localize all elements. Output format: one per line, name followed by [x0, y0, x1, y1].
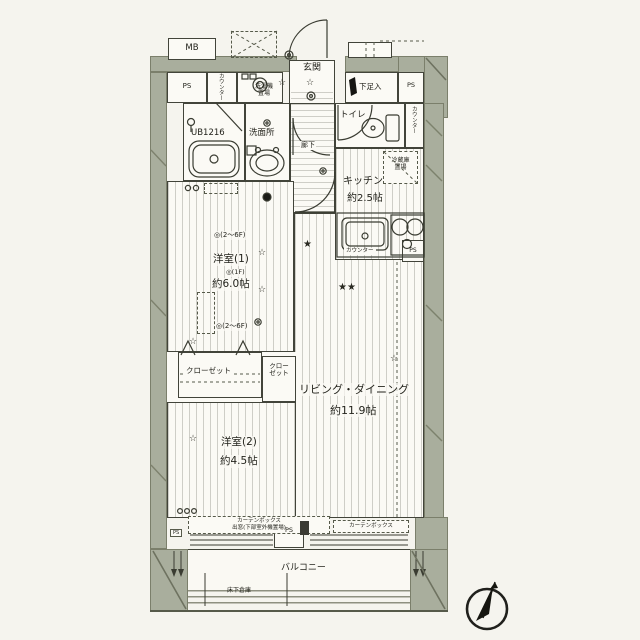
sliding-window-lines — [190, 535, 408, 545]
room1-note-1f: ◎(1F) — [226, 269, 245, 277]
pipe-space-bottom-label: PS — [274, 527, 304, 535]
living-size-label: 約11.9帖 — [330, 404, 377, 417]
entrance-door-arc — [289, 20, 327, 58]
fridge-space-label: 冷蔵庫 置場 — [383, 158, 418, 172]
star-room1-lower: ☆ — [258, 285, 266, 295]
closet-pipe-lines — [180, 374, 260, 382]
kitchen-counter-label: カウンター — [344, 248, 376, 255]
counter-strip-right-label: カウンター — [410, 106, 417, 146]
hallway-label: 廊下 — [300, 141, 316, 150]
pipe-space-kitchen-label: PS — [402, 247, 424, 254]
floorplan-vector-layer — [0, 0, 640, 640]
alcove-cross-lines — [231, 31, 277, 58]
top-duct-dashes — [366, 41, 424, 58]
shoe-cabinet-label: 下足入 — [359, 82, 382, 91]
washbasin-icon — [247, 146, 284, 176]
kitchen-name-label: キッチン — [343, 176, 383, 188]
kitchen-size-label: 約2.5帖 — [347, 193, 383, 205]
shoe-wedge-icon — [349, 77, 357, 96]
living-door-arc — [295, 172, 335, 212]
structure-dot — [263, 193, 271, 201]
balcony-label: バルコニー — [281, 563, 326, 574]
star-entrance: ☆ — [306, 78, 314, 88]
pipe-space-top-right-label: PS — [398, 82, 424, 90]
wall-hatch-lines — [151, 120, 442, 481]
washer-space-label: 洗濯機 置場 — [246, 84, 282, 97]
room2-name-label: 洋室(2) — [221, 436, 257, 449]
star-room2: ☆ — [189, 434, 197, 444]
star-kitchen-left: ★ — [303, 239, 312, 250]
pipe-space-bottom-left-label: PS — [170, 529, 182, 537]
floorplan-canvas: MB PS カウンター 洗濯機 置場 玄関 下足入 PS UB1216 洗面所 … — [0, 0, 640, 640]
room1-note-lower: ◎(2～6F) — [216, 322, 248, 331]
star-closet: ☆ — [189, 337, 197, 347]
star-living-right: ☆ — [390, 354, 398, 364]
north-compass-icon — [467, 582, 507, 629]
curtain-box-left-label: カーテンボックス 出窓(下部室外機置場) — [190, 518, 328, 531]
room2-size-label: 約4.5帖 — [220, 455, 258, 468]
toilet-label: トイレ — [340, 110, 366, 120]
pipe-space-top-left-label: PS — [167, 82, 207, 91]
washroom-label: 洗面所 — [249, 128, 275, 138]
counter-strip-left-label: カウンター — [217, 73, 224, 103]
room1-name-label: 洋室(1) — [213, 253, 249, 266]
underfloor-storage-label: 床下倉庫 — [227, 587, 251, 594]
closet-main-label: クローゼット — [186, 366, 231, 375]
toilet-icon — [362, 115, 399, 141]
star-room1-upper: ☆ — [258, 248, 266, 258]
star-entrance-outside: ☆ — [278, 78, 286, 88]
entrance-label: 玄関 — [289, 63, 335, 74]
living-name-label: リビング・ダイニング — [299, 383, 409, 396]
meter-box-label: MB — [168, 43, 216, 53]
bath-folding-door — [216, 103, 242, 131]
closet-small-label: クロー ゼット — [262, 363, 296, 378]
curtain-box-right-label: カーテンボックス — [333, 523, 409, 530]
star-living-double: ★★ — [338, 282, 356, 293]
room1-note-upper: ◎(2～6F) — [214, 231, 246, 240]
room1-size-label: 約6.0帖 — [212, 278, 250, 291]
unit-bath-label: UB1216 — [191, 128, 225, 138]
